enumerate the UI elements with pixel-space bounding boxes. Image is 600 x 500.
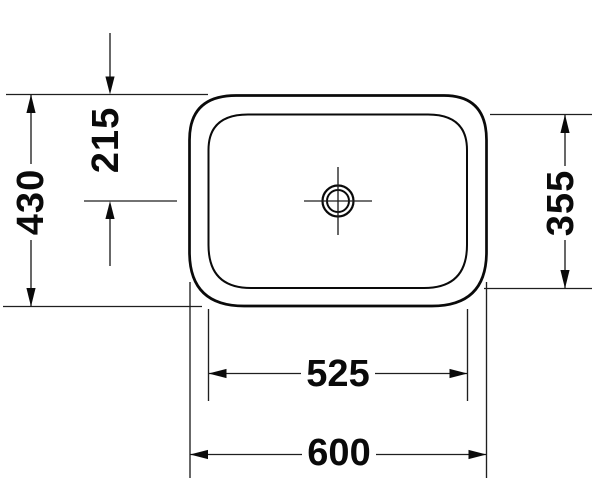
dimension-label-overall-width: 600 [307, 432, 370, 474]
arrowhead-left-icon [190, 450, 208, 459]
dimension-label-drain-offset: 215 [85, 107, 127, 173]
arrowhead-down-icon [105, 77, 114, 95]
basin-top-view [190, 96, 487, 307]
arrowhead-up-icon [105, 201, 114, 219]
arrowhead-down-icon [560, 270, 569, 289]
drain-icon [304, 167, 372, 235]
arrowhead-down-icon [26, 288, 35, 307]
arrowhead-left-icon [209, 369, 227, 378]
arrowhead-up-icon [26, 95, 35, 114]
dimension-label-inner-depth: 355 [540, 170, 582, 236]
dimension-label-overall-depth: 430 [10, 169, 52, 235]
basin-dimension-drawing: 430 215 355 525 [0, 0, 600, 500]
arrowhead-right-icon [450, 369, 468, 378]
technical-drawing-canvas: 430 215 355 525 [0, 0, 600, 500]
dimension-inner-width: 525 [209, 309, 468, 401]
arrowhead-right-icon [469, 450, 487, 459]
dimension-inner-depth: 355 [484, 115, 592, 289]
arrowhead-up-icon [560, 115, 569, 134]
dimension-drain-offset: 215 [84, 33, 177, 266]
dimension-label-inner-width: 525 [306, 353, 369, 395]
